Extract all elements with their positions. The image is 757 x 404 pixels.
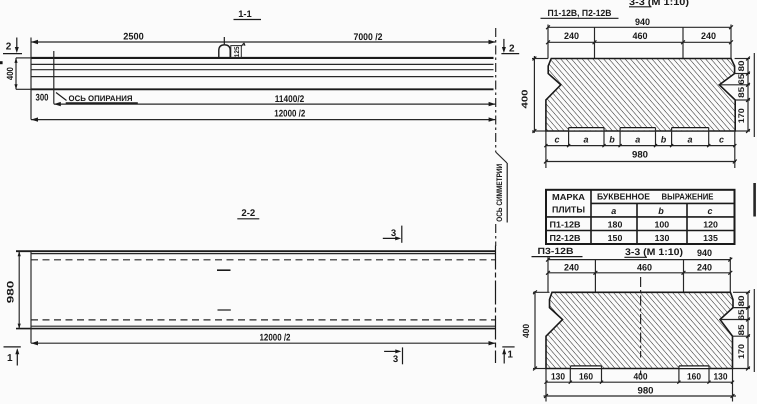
- svg-text:2: 2: [509, 43, 515, 54]
- svg-text:3: 3: [393, 354, 398, 365]
- svg-text:3: 3: [391, 228, 396, 239]
- svg-text:ПЛИТЫ: ПЛИТЫ: [552, 205, 585, 215]
- svg-text:460: 460: [633, 30, 648, 41]
- svg-text:b: b: [661, 135, 667, 145]
- svg-text:2500: 2500: [123, 32, 144, 43]
- svg-text:65: 65: [737, 309, 746, 321]
- svg-text:400: 400: [5, 67, 15, 80]
- svg-text:b: b: [658, 206, 664, 216]
- svg-text:80: 80: [737, 295, 746, 307]
- svg-text:400: 400: [519, 89, 529, 108]
- svg-text:400: 400: [521, 324, 531, 338]
- svg-text:7000 /2: 7000 /2: [354, 32, 383, 43]
- svg-text:135: 135: [703, 233, 718, 243]
- svg-text:П1-12В: П1-12В: [550, 220, 581, 230]
- svg-text:100: 100: [654, 220, 669, 230]
- svg-text:150: 150: [608, 233, 623, 243]
- svg-text:a: a: [635, 135, 640, 145]
- svg-text:240: 240: [564, 30, 579, 41]
- svg-text:180: 180: [608, 220, 623, 230]
- svg-text:980: 980: [638, 385, 654, 396]
- svg-text:460: 460: [637, 262, 652, 273]
- svg-text:a: a: [687, 135, 692, 145]
- svg-text:БУКВЕННОЕ: БУКВЕННОЕ: [597, 192, 650, 202]
- svg-text:a: a: [583, 135, 588, 145]
- svg-text:980: 980: [6, 281, 17, 304]
- svg-text:2: 2: [6, 42, 12, 53]
- svg-text:240: 240: [564, 262, 579, 273]
- svg-text:3-3 (М 1:10): 3-3 (М 1:10): [625, 247, 683, 258]
- svg-text:65: 65: [737, 73, 746, 85]
- svg-text:160: 160: [687, 371, 701, 381]
- svg-text:120: 120: [703, 220, 718, 230]
- svg-text:85: 85: [737, 86, 746, 98]
- svg-text:85: 85: [737, 324, 746, 336]
- svg-text:МАРКА: МАРКА: [552, 192, 586, 202]
- svg-text:П2-12В: П2-12В: [550, 233, 581, 243]
- svg-text:240: 240: [701, 30, 716, 41]
- svg-text:125: 125: [234, 46, 241, 57]
- svg-text:170: 170: [737, 344, 746, 359]
- svg-text:11400/2: 11400/2: [275, 94, 305, 105]
- svg-text:12000 /2: 12000 /2: [274, 109, 305, 120]
- svg-text:c: c: [554, 135, 559, 145]
- svg-text:b: b: [609, 135, 615, 145]
- svg-text:130: 130: [551, 371, 565, 381]
- svg-text:ВЫРАЖЕНИЕ: ВЫРАЖЕНИЕ: [662, 192, 714, 202]
- svg-text:300: 300: [36, 92, 49, 103]
- svg-text:980: 980: [632, 149, 648, 160]
- svg-text:240: 240: [697, 262, 712, 273]
- svg-text:c: c: [707, 206, 712, 216]
- svg-text:П1-12В, П2-12В: П1-12В, П2-12В: [548, 8, 612, 18]
- svg-text:130: 130: [714, 371, 728, 381]
- svg-text:160: 160: [579, 371, 593, 381]
- svg-text:1: 1: [7, 353, 13, 364]
- svg-text:ОСЬ СИММЕТРИИ: ОСЬ СИММЕТРИИ: [495, 164, 504, 222]
- svg-text:П3-12В: П3-12В: [538, 246, 575, 256]
- svg-text:ОСЬ ОПИРАНИЯ: ОСЬ ОПИРАНИЯ: [69, 94, 133, 103]
- svg-text:940: 940: [697, 247, 712, 258]
- svg-text:a: a: [611, 206, 616, 216]
- svg-text:2-2: 2-2: [241, 208, 255, 219]
- svg-text:940: 940: [635, 16, 650, 27]
- svg-text:130: 130: [655, 233, 670, 243]
- svg-text:400: 400: [634, 371, 648, 381]
- svg-text:12000 /2: 12000 /2: [260, 332, 291, 343]
- svg-text:1-1: 1-1: [238, 8, 252, 19]
- svg-text:1: 1: [507, 350, 513, 361]
- svg-text:80: 80: [737, 60, 746, 72]
- svg-text:170: 170: [737, 108, 746, 123]
- svg-text:c: c: [719, 135, 724, 145]
